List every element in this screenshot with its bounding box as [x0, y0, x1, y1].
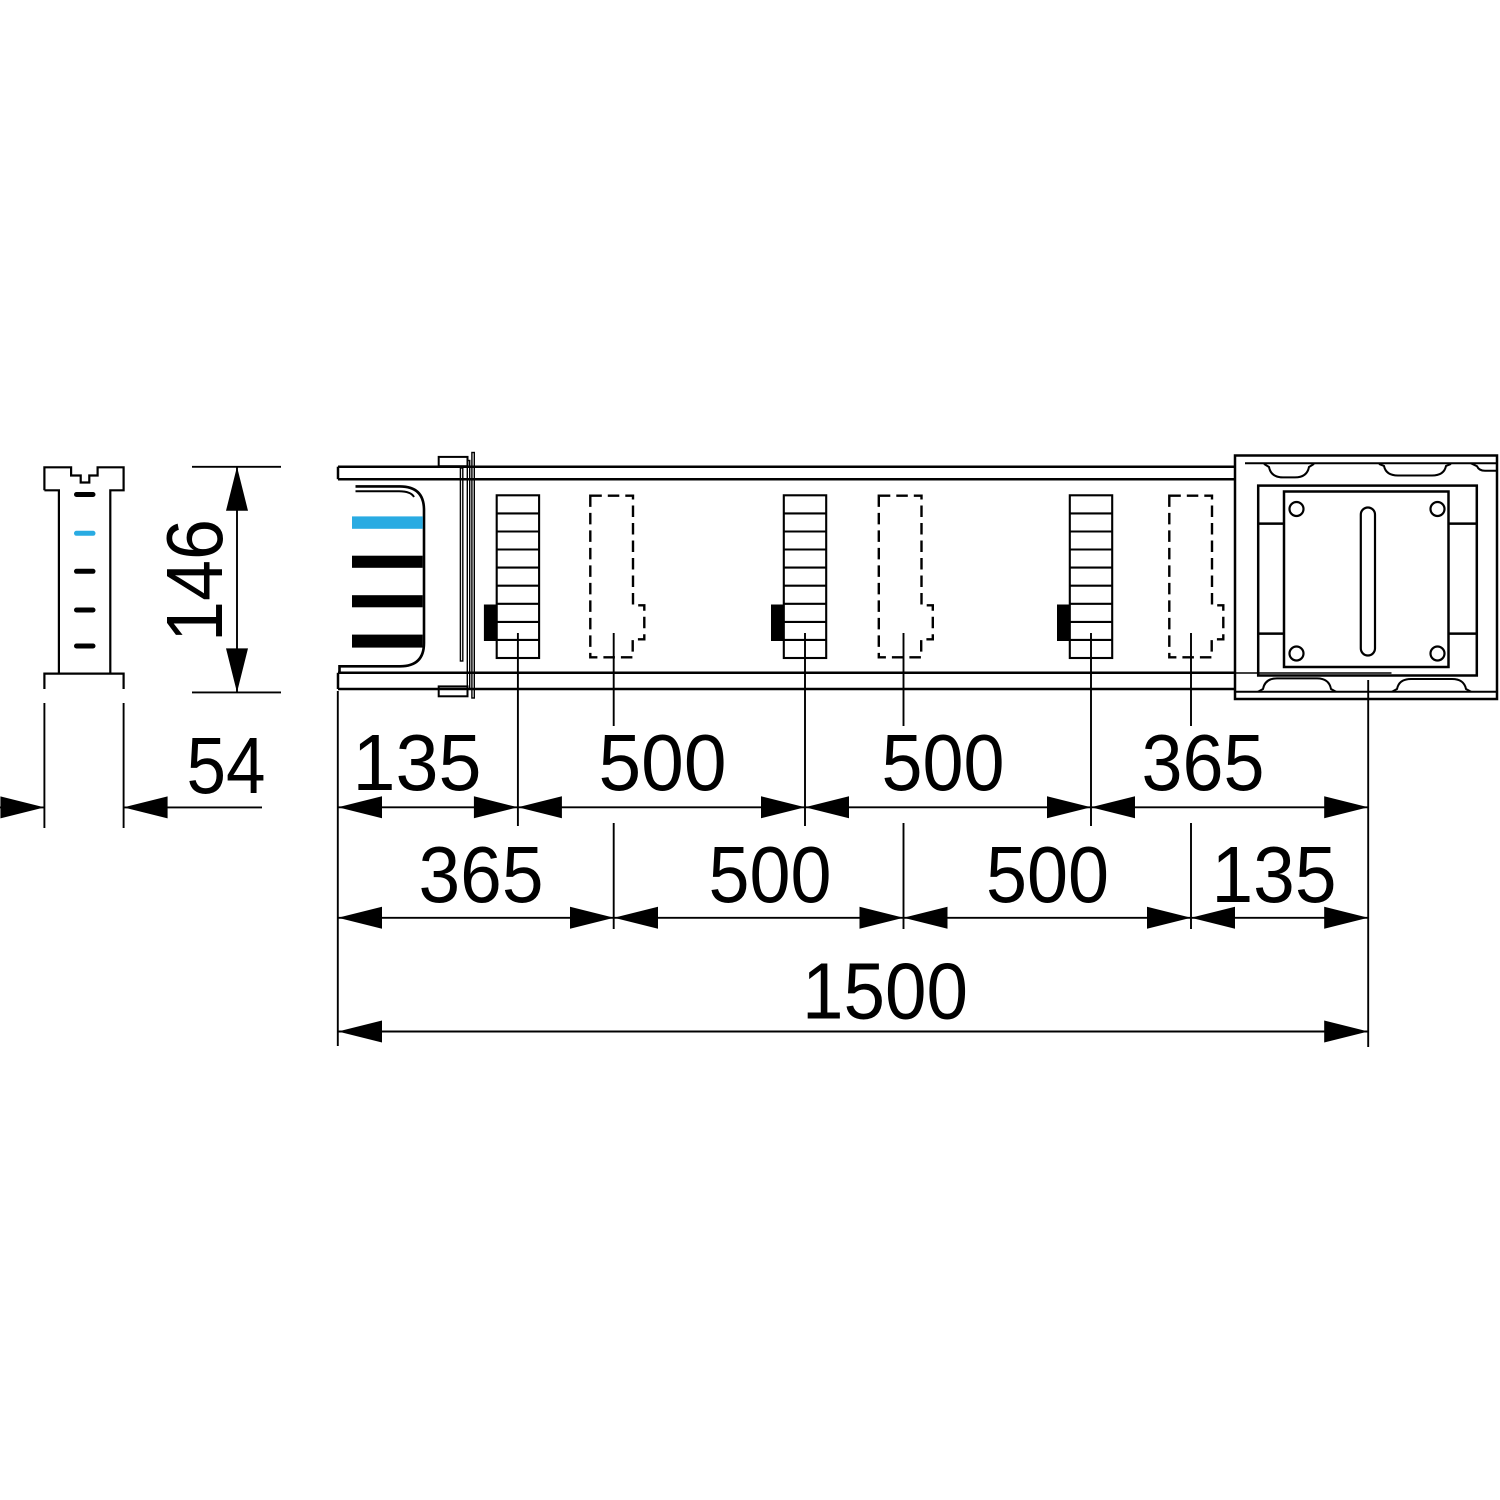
svg-text:500: 500 — [986, 830, 1109, 919]
svg-text:1500: 1500 — [802, 947, 968, 1036]
svg-text:135: 135 — [353, 718, 482, 807]
svg-text:500: 500 — [599, 718, 727, 807]
svg-text:365: 365 — [419, 830, 544, 919]
svg-text:146: 146 — [150, 519, 239, 642]
svg-text:500: 500 — [882, 718, 1005, 807]
svg-text:500: 500 — [709, 830, 832, 919]
svg-text:365: 365 — [1142, 718, 1265, 807]
svg-text:54: 54 — [187, 721, 266, 810]
svg-text:135: 135 — [1212, 830, 1337, 919]
